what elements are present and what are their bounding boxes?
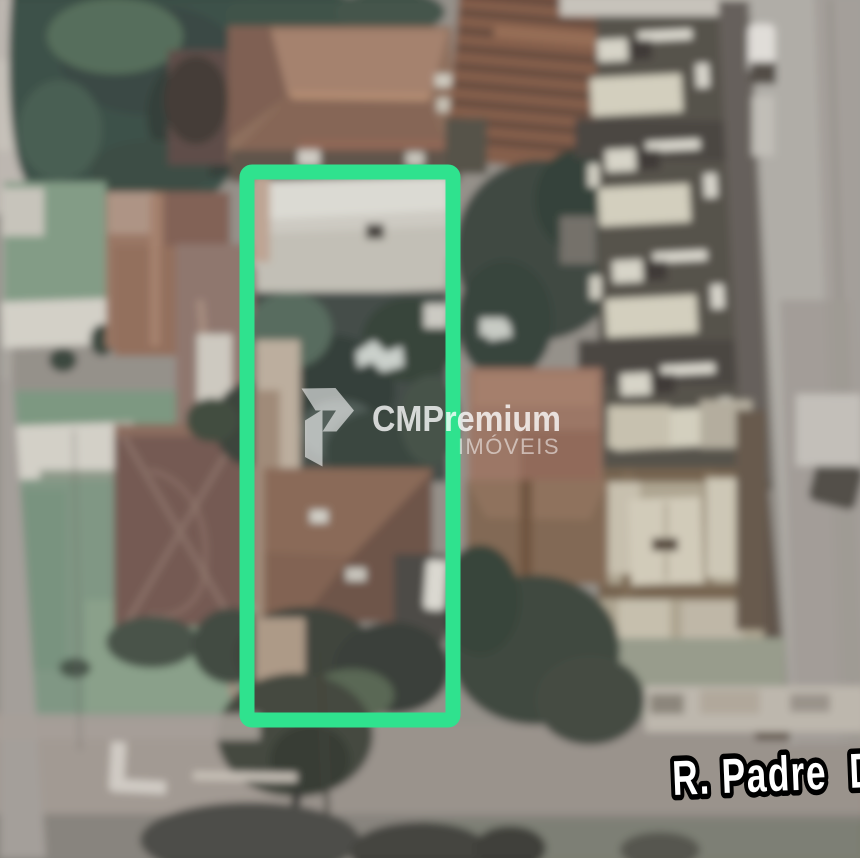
svg-text:IMÓVEIS: IMÓVEIS xyxy=(458,434,560,459)
svg-text:R. Padre D: R. Padre D xyxy=(671,743,860,806)
